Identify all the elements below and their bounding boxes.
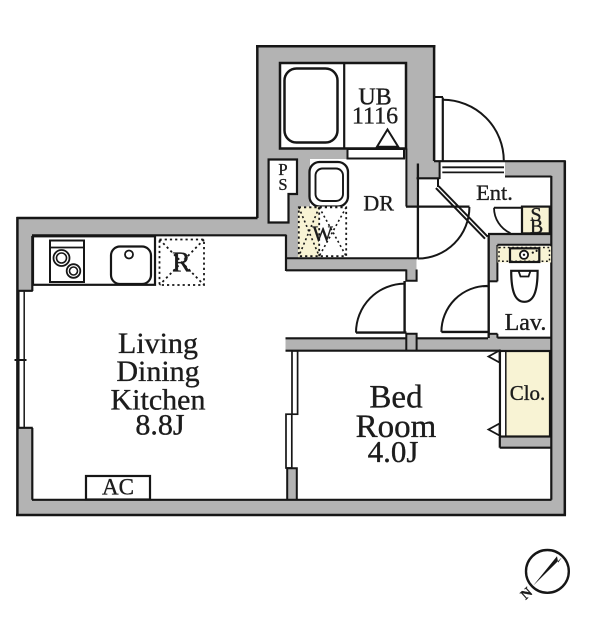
svg-text:B: B [530, 216, 543, 238]
svg-text:R: R [172, 248, 191, 279]
svg-text:Ent.: Ent. [476, 180, 513, 205]
svg-text:8.8J: 8.8J [135, 409, 185, 442]
svg-text:Lav.: Lav. [505, 310, 547, 336]
svg-text:S: S [278, 175, 287, 194]
svg-text:1116: 1116 [352, 104, 398, 130]
svg-text:4.0J: 4.0J [368, 434, 419, 469]
svg-text:AC: AC [102, 475, 134, 500]
svg-text:W: W [312, 221, 333, 246]
svg-text:DR: DR [363, 191, 394, 216]
svg-text:Clo.: Clo. [510, 381, 546, 405]
